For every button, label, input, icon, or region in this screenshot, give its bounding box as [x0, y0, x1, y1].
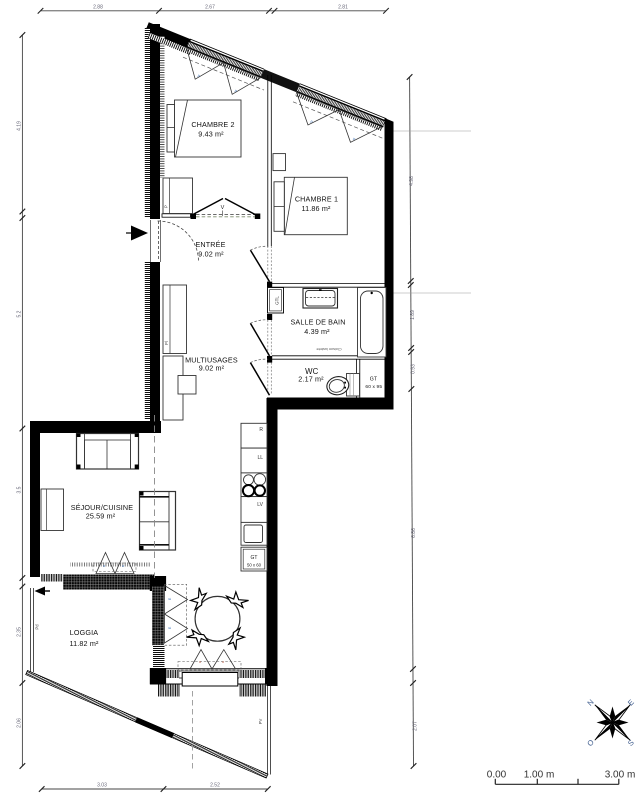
svg-text:2.52: 2.52 — [210, 783, 220, 789]
svg-text:LL: LL — [257, 455, 263, 461]
svg-text:9.43 m²: 9.43 m² — [198, 129, 224, 138]
svg-text:R: R — [259, 427, 263, 433]
svg-text:9.02 m²: 9.02 m² — [198, 250, 224, 259]
svg-text:1.89: 1.89 — [410, 310, 416, 320]
svg-text:4.19: 4.19 — [17, 121, 23, 131]
svg-text:2.06: 2.06 — [17, 718, 23, 728]
svg-text:3.00 m: 3.00 m — [605, 770, 636, 781]
svg-text:0.93: 0.93 — [410, 364, 416, 374]
svg-text:CHAMBRE 1: CHAMBRE 1 — [295, 195, 338, 204]
svg-text:4.39 m²: 4.39 m² — [304, 327, 330, 336]
svg-text:6.86: 6.86 — [411, 528, 417, 538]
svg-text:2.07: 2.07 — [412, 721, 418, 731]
svg-text:11.86 m²: 11.86 m² — [301, 204, 330, 213]
svg-text:V: V — [221, 205, 225, 211]
svg-text:P: P — [164, 205, 169, 208]
svg-text:2.17 m²: 2.17 m² — [298, 375, 324, 384]
svg-text:3.03: 3.03 — [97, 783, 107, 789]
svg-text:ENTRÉE: ENTRÉE — [195, 240, 225, 249]
svg-text:60 x 95: 60 x 95 — [365, 384, 382, 390]
svg-text:2.67: 2.67 — [205, 5, 215, 11]
svg-text:1.00 m: 1.00 m — [524, 770, 555, 781]
svg-text:LOGGIA: LOGGIA — [70, 628, 99, 637]
svg-text:a: a — [222, 660, 224, 664]
svg-text:4.98: 4.98 — [409, 176, 415, 186]
svg-text:25.59 m²: 25.59 m² — [86, 512, 116, 521]
svg-text:GT: GT — [251, 555, 258, 561]
svg-text:a: a — [103, 564, 105, 568]
svg-text:11.82 m²: 11.82 m² — [69, 639, 98, 648]
svg-text:2.35: 2.35 — [17, 627, 23, 637]
svg-text:GTL: GTL — [275, 296, 280, 305]
svg-text:Cloison lustrée: Cloison lustrée — [316, 347, 341, 351]
svg-text:3.5: 3.5 — [17, 486, 23, 493]
svg-text:2.81: 2.81 — [338, 5, 348, 11]
svg-text:CHAMBRE 2: CHAMBRE 2 — [191, 120, 234, 129]
svg-text:50 x 60: 50 x 60 — [247, 563, 262, 568]
svg-text:LV: LV — [257, 502, 263, 508]
svg-text:5.2: 5.2 — [17, 310, 23, 317]
svg-text:SALLE DE BAIN: SALLE DE BAIN — [290, 318, 345, 327]
svg-text:0.00: 0.00 — [487, 770, 507, 781]
svg-text:a: a — [199, 660, 201, 664]
svg-text:9.02 m²: 9.02 m² — [199, 364, 225, 373]
svg-text:GT: GT — [370, 377, 378, 383]
svg-text:2.88: 2.88 — [93, 5, 103, 11]
svg-text:a: a — [122, 564, 124, 568]
svg-text:PV: PV — [258, 719, 263, 725]
svg-text:Pd: Pd — [35, 624, 40, 630]
svg-text:Pl: Pl — [164, 341, 169, 345]
